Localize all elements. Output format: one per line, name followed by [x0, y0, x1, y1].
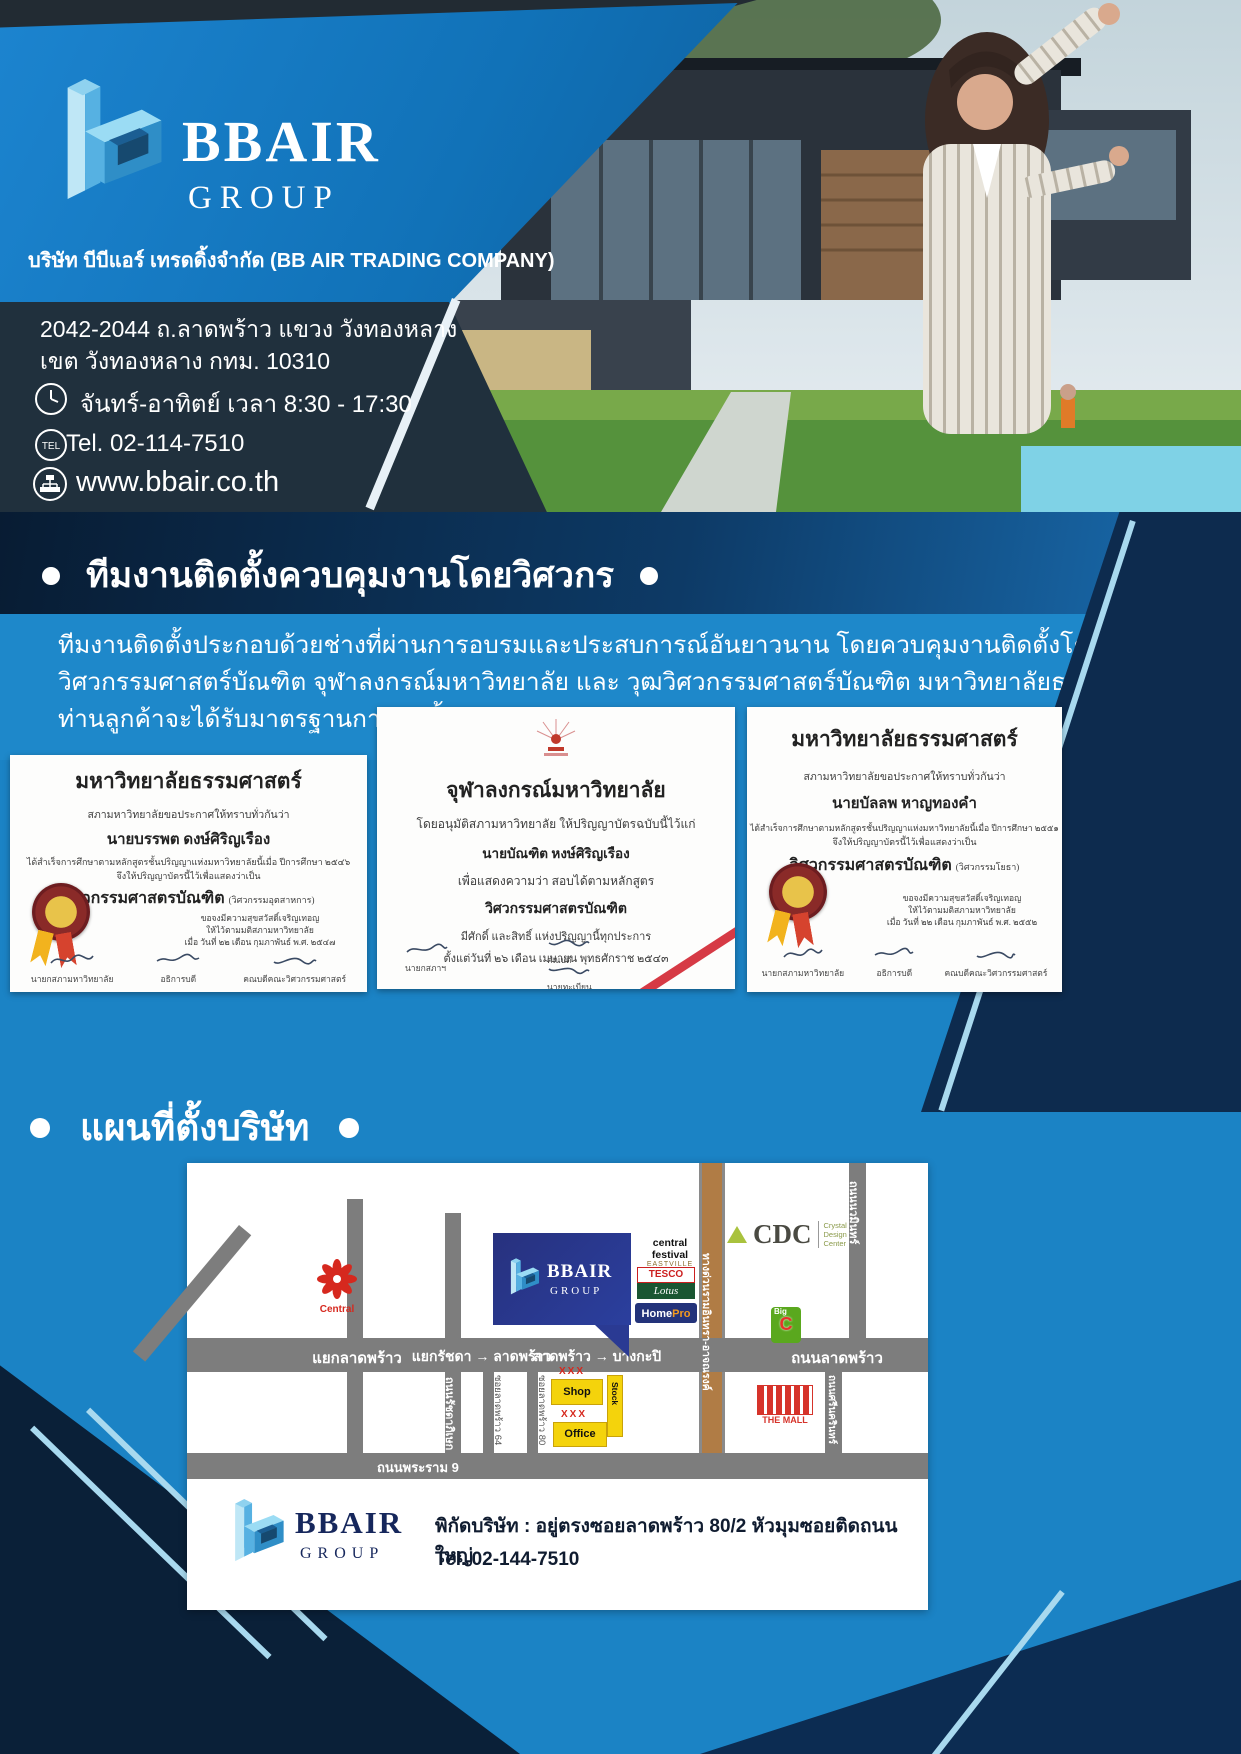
cert1-name: นายบรรพต ดงษ์ศิริญเรือง [10, 827, 367, 851]
cert2-signature-1: นายกสภาฯ [405, 943, 449, 975]
signer-role: นายกสภามหาวิทยาลัย [762, 966, 845, 980]
map-section-heading: แผนที่ตั้งบริษัท [80, 1098, 309, 1157]
bbair-logo-icon [225, 1493, 287, 1573]
bbair-logo-icon [48, 52, 168, 237]
road-vertical-1 [347, 1199, 363, 1453]
address-line-2: เขต วังทองหลาง กทม. 10310 [40, 344, 330, 380]
cert3-completed: ได้สำเร็จการศึกษาตามหลักสูตรชั้นปริญญาแห… [747, 821, 1062, 835]
soi-label-80: ซอยลาดพร้าว 80 [534, 1375, 549, 1445]
tesco-label: TESCO [637, 1267, 695, 1283]
signer-role: นายกสภาฯ [405, 961, 449, 975]
map-box-group: GROUP [550, 1285, 602, 1297]
phone-number[interactable]: Tel. 02-114-7510 [66, 430, 244, 458]
footer-tel[interactable]: Tel. 02-144-7510 [435, 1549, 579, 1571]
cert3-date: เมื่อ วันที่ ๒๒ เดือน กุมภาพันธ์ พ.ศ. ๒๕… [867, 915, 1057, 929]
centralfestival-label: central festival [635, 1237, 705, 1261]
team-section-heading: ทีมงานติดตั้งควบคุมงานโดยวิศวกร [86, 548, 614, 603]
office-box: Office [553, 1422, 607, 1447]
cert2-line2: เพื่อแสดงความว่า สอบได้ตามหลักสูตร [377, 872, 735, 891]
company-line: บริษัท บีบีแอร์ เทรดดิ้งจำกัด (BB AIR TR… [28, 244, 554, 276]
cert3-signatures: นายกสภามหาวิทยาลัย อธิการบดี คณบดีคณะวิศ… [747, 947, 1062, 980]
cert2-degree: วิศวกรรมศาสตรบัณฑิต [377, 898, 735, 920]
cert1-signatures: นายกสภามหาวิทยาลัย อธิการบดี คณบดีคณะวิศ… [10, 953, 367, 986]
themall-landmark: THE MALL [757, 1385, 813, 1425]
cdc-landmark: CDC Crystal Design Center [727, 1219, 858, 1250]
cert2-name: นายบัณฑิต หงษ์ศิริญเรือง [377, 842, 735, 864]
clock-icon [34, 382, 68, 416]
cdc-triangle-icon [727, 1226, 747, 1243]
bullet-icon [30, 1118, 50, 1138]
road-label-expressway: ทางด่วนรามอินทรา-อาจณรงค์ [698, 1253, 715, 1391]
svg-text:TEL: TEL [42, 441, 61, 452]
road-label-ratchada: ถนนรัชดาภิเษก [441, 1377, 459, 1450]
cert1-proclaim: สภามหาวิทยาลัยขอประกาศให้ทราบทั่วกันว่า [10, 806, 367, 823]
certificate-thammasat-2: มหาวิทยาลัยธรรมศาสตร์ สภามหาวิทยาลัยขอปร… [747, 707, 1062, 992]
map-card: แยกลาดพร้าว แยกรัชดา → ลาดพร้าว ลาดพร้าว… [187, 1163, 928, 1610]
footer-group: GROUP [300, 1545, 384, 1563]
footer-brand: BBAIR [295, 1505, 403, 1541]
xxx-mark: XXX [559, 1366, 585, 1377]
cert1-completed: ได้สำเร็จการศึกษาตามหลักสูตรชั้นปริญญาแห… [10, 855, 367, 869]
xxx-mark: XXX [561, 1409, 587, 1420]
homepro-landmark: HomePro [635, 1303, 697, 1323]
map-box-brand: BBAIR [547, 1261, 612, 1283]
certificate-thammasat-1: มหาวิทยาลัยธรรมศาสตร์ สภามหาวิทยาลัยขอปร… [10, 755, 367, 992]
themall-stripes-icon [757, 1385, 813, 1415]
road-label-srinakarin: ถนนศรีนครินทร์ [824, 1375, 839, 1444]
website-icon [32, 466, 68, 502]
cert3-university: มหาวิทยาลัยธรรมศาสตร์ [747, 723, 1062, 756]
team-heading-row: ทีมงานติดตั้งควบคุมงานโดยวิศวกร [42, 548, 658, 603]
themall-label: THE MALL [757, 1415, 813, 1425]
centralfestival-landmark: central festival EASTVILLE [635, 1237, 705, 1268]
bbair-logo [48, 52, 168, 242]
signer-role: นายทะเบียน [547, 980, 592, 989]
cert3-major: (วิศวกรรมโยธา) [956, 862, 1020, 872]
brand-group: GROUP [188, 180, 340, 217]
brochure-page: BBAIR GROUP บริษัท บีบีแอร์ เทรดดิ้งจำกั… [0, 0, 1241, 1754]
footer-location-label: พิกัดบริษัท : [435, 1516, 530, 1537]
homepro-pro: Pro [672, 1308, 690, 1320]
central-landmark: Central [307, 1259, 367, 1315]
central-flower-icon [317, 1259, 357, 1299]
signer-role: คณบดีคณะวิศวกรรมศาสตร์ [243, 972, 346, 986]
cert3-name: นายบัลลพ หาญทองคำ [747, 791, 1062, 815]
lotus-label: Lotus [637, 1283, 695, 1299]
soi-label-64: ซอยลาดพร้าว 64 [490, 1375, 505, 1445]
bigc-landmark: Big C [771, 1307, 801, 1343]
cert3-proclaim: สภามหาวิทยาลัยขอประกาศให้ทราบทั่วกันว่า [747, 768, 1062, 785]
signer-role: อธิการบดี [155, 972, 201, 986]
address-line-1: 2042-2044 ถ.ลาดพร้าว แขวง วังทองหลาง [40, 312, 457, 348]
business-hours: จันทร์-อาทิตย์ เวลา 8:30 - 17:30 [80, 384, 412, 423]
seal-ribbon-gold [767, 910, 791, 947]
phone-icon: TEL [34, 428, 68, 462]
cdc-sub: Crystal Design Center [818, 1221, 858, 1248]
bullet-icon [339, 1118, 359, 1138]
tesco-lotus-landmark: TESCO Lotus [637, 1267, 695, 1299]
cert1-major: (วิศวกรรมอุตสาหการ) [229, 895, 315, 905]
homepro-home: Home [642, 1308, 673, 1320]
cert2-line1: โดยอนุมัติสภามหาวิทยาลัย ให้ปริญญาบัตรฉบ… [377, 815, 735, 834]
shop-box: Shop [551, 1379, 603, 1405]
stock-label: Stock [610, 1382, 620, 1405]
signer-role: นายกสภามหาวิทยาลัย [31, 972, 114, 986]
bigc-c: C [771, 1316, 801, 1332]
signer-role: อธิการบดี [873, 966, 915, 980]
signer-role: คณบดีคณะวิศวกรรมศาสตร์ [945, 966, 1048, 980]
bbair-map-box: BBAIR GROUP [493, 1233, 631, 1325]
stock-strip: Stock [607, 1375, 623, 1437]
website-url[interactable]: www.bbair.co.th [76, 466, 279, 499]
road-rama9 [187, 1453, 928, 1479]
bullet-icon [640, 567, 658, 585]
certificate-chula: จุฬาลงกรณ์มหาวิทยาลัย โดยอนุมัติสภามหาวิ… [377, 707, 735, 989]
bbair-logo-icon [505, 1253, 541, 1303]
cert1-university: มหาวิทยาลัยธรรมศาสตร์ [10, 765, 367, 798]
chula-emblem-icon [377, 717, 735, 768]
cert2-university: จุฬาลงกรณ์มหาวิทยาลัย [377, 774, 735, 807]
cert2-signature-3: นายทะเบียน [547, 962, 592, 989]
junction-label: ลาดพร้าว → บางกะปิ [522, 1346, 672, 1368]
cdc-label: CDC [753, 1219, 812, 1250]
road-label-rama9: ถนนพระราม 9 [377, 1457, 459, 1478]
brand-name: BBAIR [182, 108, 381, 175]
cert3-grant: จึงให้ปริญญาบัตรนี้ไว้เพื่อแสดงว่าเป็น [747, 835, 1062, 849]
road-label-latphrao: ถนนลาดพร้าว [772, 1346, 902, 1370]
central-label: Central [307, 1304, 367, 1315]
map-heading-row: แผนที่ตั้งบริษัท [30, 1098, 359, 1157]
bullet-icon [42, 567, 60, 585]
cert1-date: เมื่อ วันที่ ๒๒ เดือน กุมภาพันธ์ พ.ศ. ๒๕… [160, 935, 360, 949]
cert1-grant: จึงให้ปริญญาบัตรนี้ไว้เพื่อแสดงว่าเป็น [10, 869, 367, 883]
